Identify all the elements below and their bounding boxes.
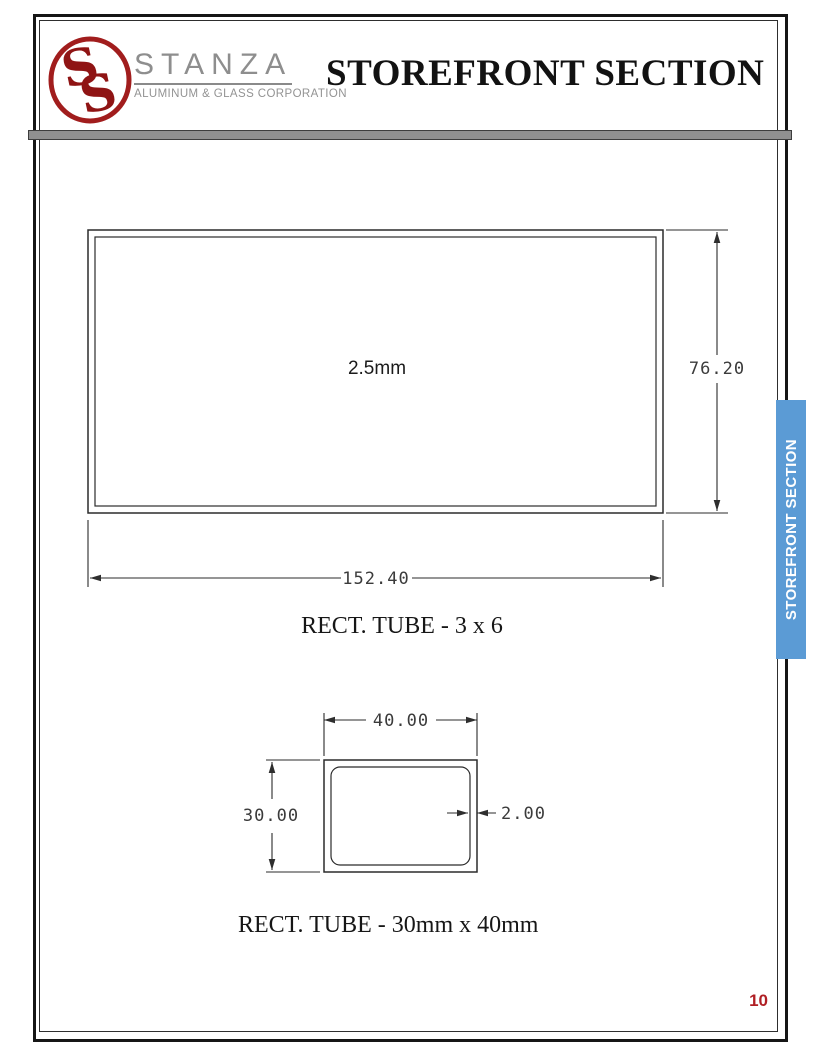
tube2-outer-wall (324, 760, 477, 872)
section-side-tab-label: STOREFRONT SECTION (783, 439, 800, 620)
tube1-height-dim-value: 76.20 (689, 359, 745, 379)
tube2-caption: RECT. TUBE - 30mm x 40mm (238, 912, 538, 939)
tube2-width-dim-value: 40.00 (373, 711, 429, 731)
tube2-thickness-dim-value: 2.00 (501, 804, 546, 824)
drawing-rect-tube-30x40 (266, 713, 496, 872)
section-side-tab: STOREFRONT SECTION (776, 400, 806, 659)
technical-drawings: 2.5mm 76.20 152.40 40.00 30.00 2.00 (0, 0, 816, 1056)
tube2-inner-wall (331, 767, 470, 865)
tube1-wall-thickness-label: 2.5mm (348, 358, 406, 379)
tube1-width-dim-value: 152.40 (342, 569, 409, 589)
drawing-rect-tube-3x6 (88, 230, 728, 587)
tube1-caption: RECT. TUBE - 3 x 6 (252, 613, 552, 640)
tube2-height-dim-value: 30.00 (243, 806, 299, 826)
page-number: 10 (720, 991, 768, 1011)
